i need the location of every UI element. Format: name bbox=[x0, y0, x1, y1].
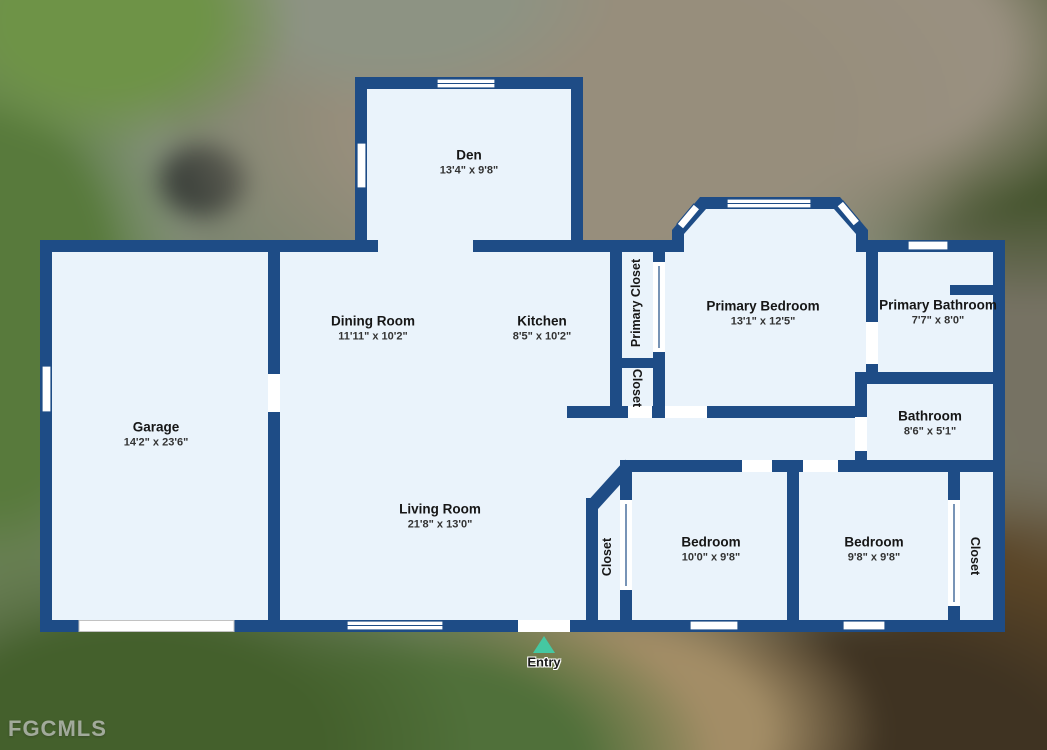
window bbox=[843, 621, 885, 630]
bay-floor bbox=[684, 209, 856, 252]
entry-door-opening bbox=[518, 620, 570, 632]
door-opening bbox=[742, 460, 772, 472]
wall-segment bbox=[40, 240, 52, 632]
wall-segment bbox=[652, 406, 665, 418]
garage-wall bbox=[268, 252, 280, 620]
wall-segment bbox=[707, 406, 857, 418]
window bbox=[908, 241, 948, 250]
wall-segment bbox=[610, 358, 665, 368]
entry-marker-icon bbox=[533, 636, 555, 653]
wall-segment bbox=[855, 372, 1005, 384]
den-floor bbox=[355, 77, 583, 252]
door-opening bbox=[855, 417, 867, 451]
door-opening bbox=[803, 460, 838, 472]
wall-segment bbox=[586, 498, 598, 620]
door-opening bbox=[628, 406, 652, 418]
floorplan-screenshot: Den 13'4" x 9'8" Dining Room 11'11" x 10… bbox=[0, 0, 1047, 750]
wall-segment bbox=[610, 252, 622, 418]
entry-label: Entry bbox=[527, 655, 560, 670]
window bbox=[690, 621, 738, 630]
wall-segment bbox=[571, 77, 583, 252]
floor-areas bbox=[40, 77, 1005, 632]
wall-segment bbox=[40, 240, 378, 252]
mls-watermark: FGCMLS bbox=[8, 716, 107, 742]
window bbox=[42, 366, 51, 412]
garage-door bbox=[79, 621, 234, 632]
wall-segment bbox=[993, 240, 1005, 632]
wall-segment bbox=[866, 252, 878, 384]
wall-segment bbox=[950, 285, 993, 295]
window bbox=[357, 143, 366, 188]
wall-segment bbox=[567, 406, 628, 418]
floorplan-drawing bbox=[0, 0, 1047, 750]
door-opening bbox=[866, 322, 878, 364]
wall-segment bbox=[787, 462, 799, 620]
door-opening bbox=[665, 406, 707, 418]
door-opening bbox=[268, 374, 280, 412]
